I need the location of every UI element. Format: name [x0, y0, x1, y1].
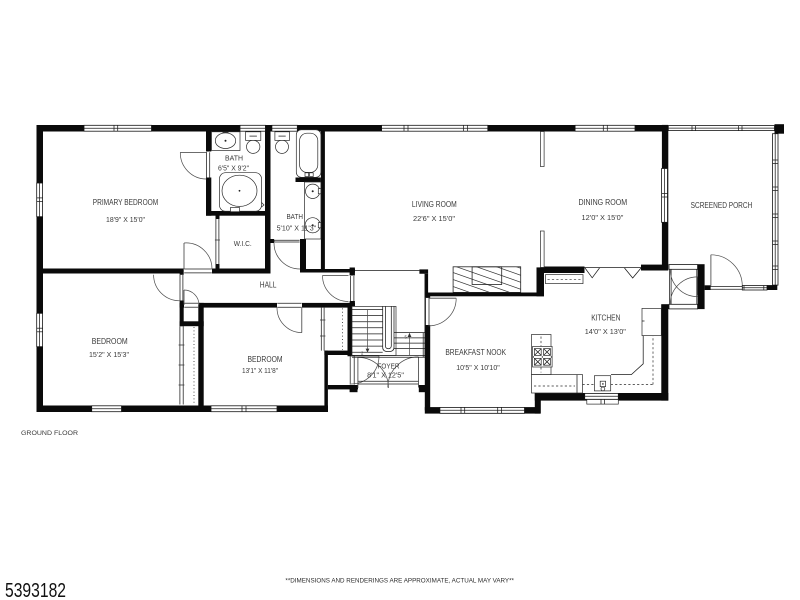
svg-text:BATH: BATH [225, 153, 243, 162]
svg-text:BEDROOM: BEDROOM [248, 355, 283, 364]
svg-text:10'5" X 10'10": 10'5" X 10'10" [456, 363, 500, 372]
svg-text:22'6" X 15'0": 22'6" X 15'0" [413, 214, 455, 223]
svg-text:BREAKFAST NOOK: BREAKFAST NOOK [445, 348, 506, 357]
svg-text:18'9" X 15'0": 18'9" X 15'0" [106, 215, 145, 224]
svg-text:FOYER: FOYER [378, 364, 400, 371]
svg-text:5393182: 5393182 [5, 579, 66, 600]
svg-text:13'1" X 11'8": 13'1" X 11'8" [242, 366, 278, 375]
svg-text:KITCHEN: KITCHEN [591, 314, 620, 323]
svg-text:GROUND FLOOR: GROUND FLOOR [21, 430, 78, 437]
svg-text:W.I.C.: W.I.C. [234, 239, 252, 248]
svg-text:HALL: HALL [260, 281, 277, 290]
svg-text:12'0" X 15'0": 12'0" X 15'0" [582, 213, 624, 222]
svg-text:SCREENED PORCH: SCREENED PORCH [691, 201, 753, 210]
svg-text:14'0" X 13'0": 14'0" X 13'0" [585, 327, 627, 336]
svg-text:**DIMENSIONS AND RENDERINGS AR: **DIMENSIONS AND RENDERINGS ARE APPROXIM… [285, 577, 514, 584]
svg-text:PRIMARY BEDROOM: PRIMARY BEDROOM [93, 198, 159, 207]
svg-text:15'2" X 15'3": 15'2" X 15'3" [89, 350, 129, 359]
svg-text:6'5" X 9'2": 6'5" X 9'2" [218, 163, 249, 172]
svg-text:BEDROOM: BEDROOM [92, 337, 128, 346]
svg-text:BATH: BATH [286, 212, 303, 221]
svg-text:LIVING ROOM: LIVING ROOM [412, 200, 457, 209]
svg-text:DINING ROOM: DINING ROOM [578, 198, 627, 207]
svg-text:5'10" X 11'3": 5'10" X 11'3" [277, 223, 317, 232]
svg-text:8'1" X 12'5": 8'1" X 12'5" [367, 372, 404, 379]
